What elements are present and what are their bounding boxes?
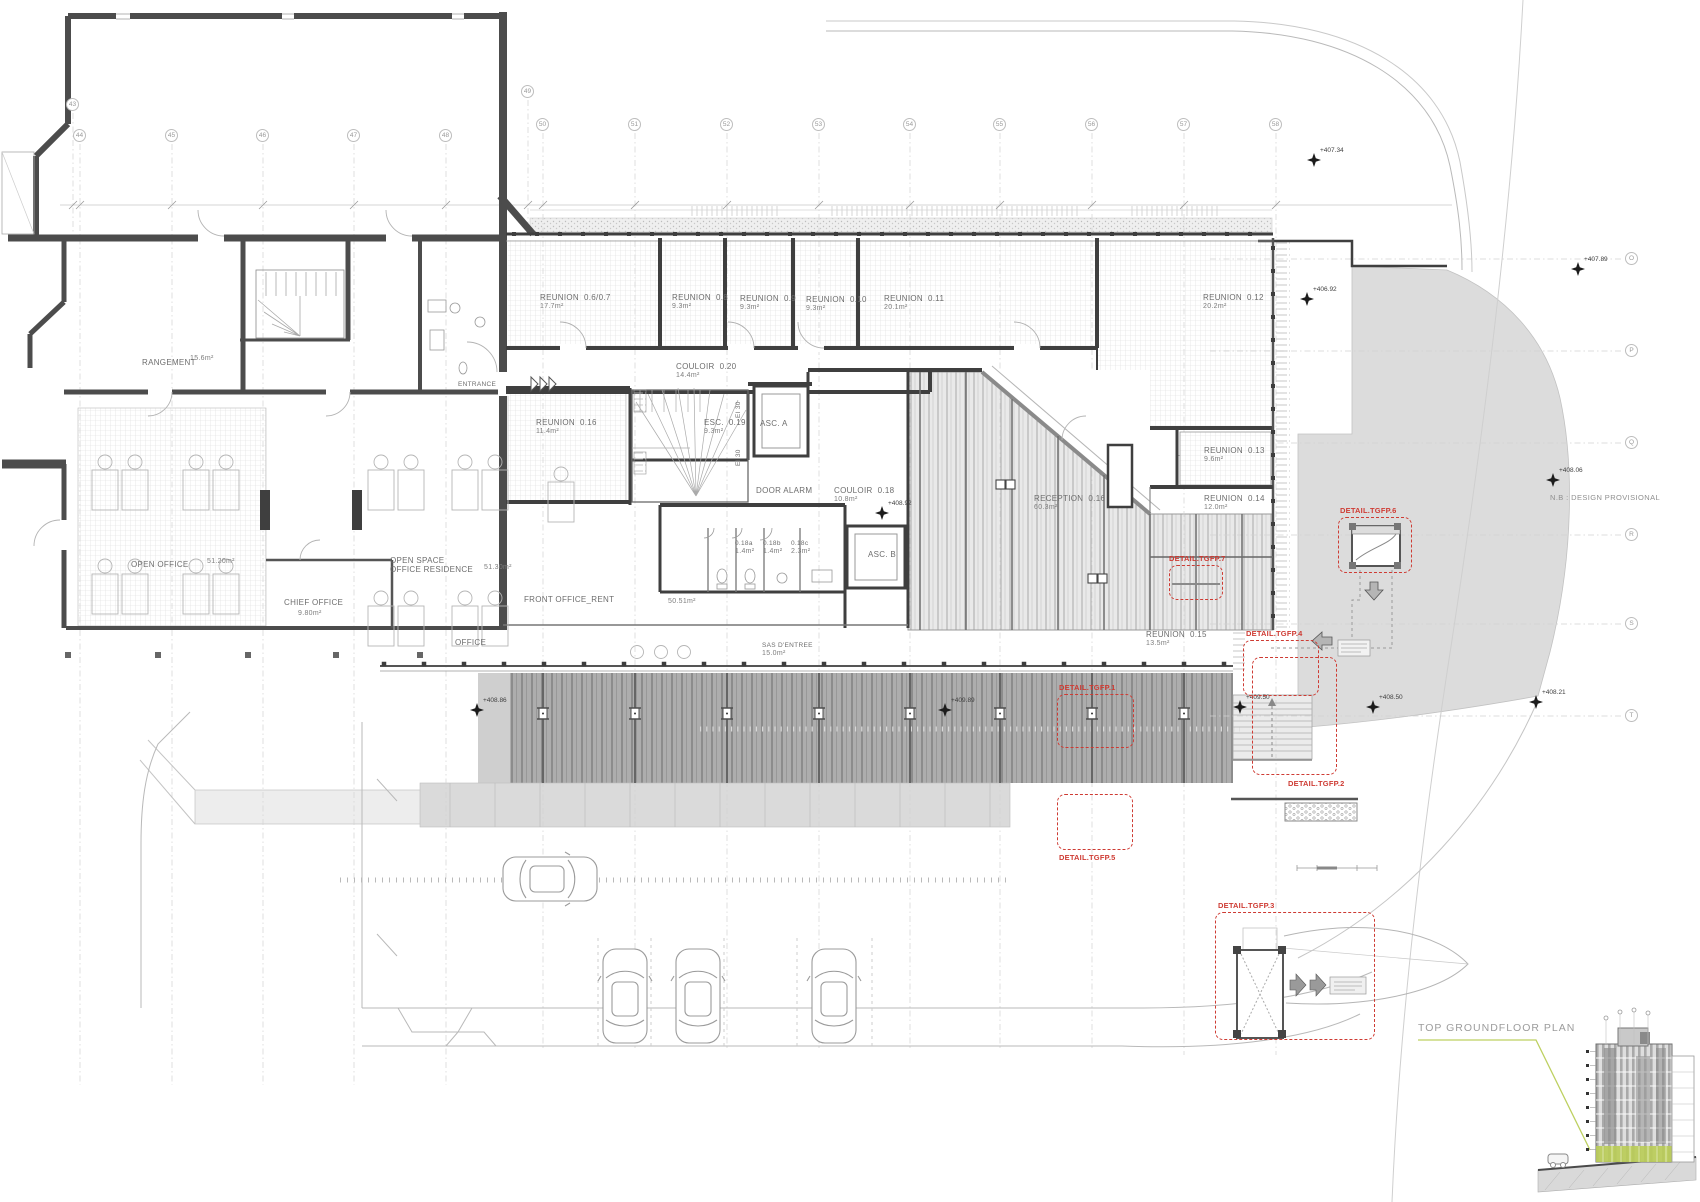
room-label-reunion-0-12: REUNION 0.1220.2m² [1203, 293, 1264, 302]
room-name: REUNION 0.12 [1203, 293, 1264, 302]
grid-column-56: 56 [1085, 118, 1098, 131]
room-name: CHIEF OFFICE [284, 598, 343, 607]
room-label-asc-a: ASC. A [760, 419, 788, 428]
room-label-reunion-0-13: REUNION 0.139.6m² [1204, 446, 1265, 455]
room-name: ENTRANCE [458, 381, 496, 388]
room-name: OPEN OFFICE [131, 560, 189, 569]
room-area: 51.20m² [207, 557, 235, 566]
level-mark-407-34: +407.34 [1320, 147, 1344, 154]
level-mark-408-06: +408.06 [1559, 467, 1583, 474]
room-name: REUNION 0.14 [1204, 494, 1265, 503]
room-name: ASC. B [868, 550, 896, 559]
grid-column-45: 45 [165, 129, 178, 142]
plan-title: TOP GROUNDFLOOR PLAN [1418, 1022, 1575, 1034]
grid-column-47: 47 [347, 129, 360, 142]
room-label-reunion-0-15: REUNION 0.1513.5m² [1146, 630, 1207, 639]
room-label-chief-office: CHIEF OFFICE9.80m² [284, 598, 343, 607]
room-label-entrance: ENTRANCE [458, 379, 496, 389]
detail-box-detail-tgfp-6 [1338, 517, 1412, 573]
room-area: 9.3m² [806, 304, 825, 313]
room-area: 11.4m² [536, 427, 559, 436]
room-name: FRONT OFFICE_RENT [524, 595, 614, 604]
room-area: 20.1m² [884, 303, 908, 312]
room-area: 14.4m² [676, 371, 700, 380]
grid-row-p: P [1625, 344, 1638, 357]
room-label-sas-d-entree: SAS D'ENTREE15.0m² [762, 640, 813, 650]
room-name: ESC. 0.19 [704, 418, 746, 427]
room-label-reunion-0-14: REUNION 0.1412.0m² [1204, 494, 1265, 503]
level-mark-408-92: +408.92 [888, 500, 912, 507]
room-area: 50.51m² [668, 597, 696, 606]
room-name: COULOIR 0.20 [676, 362, 736, 371]
detail-box-detail-tgfp-3 [1215, 912, 1375, 1040]
detail-box-detail-tgfp-5 [1057, 794, 1133, 850]
room-label-ei-30: EI 30 [733, 401, 743, 418]
level-mark-408-86: +408.86 [483, 697, 507, 704]
room-label-couloir-0-18: COULOIR 0.1810.8m² [834, 486, 894, 495]
detail-label-detail-tgfp-6: DETAIL.TGFP.6 [1340, 506, 1397, 515]
detail-label-detail-tgfp-3: DETAIL.TGFP.3 [1218, 901, 1275, 910]
room-area: 2.3m² [791, 547, 810, 556]
room-name: ASC. A [760, 419, 788, 428]
room-label-reunion-0-6-0-7: REUNION 0.6/0.717.7m² [540, 293, 611, 302]
room-label-rangement: RANGEMENT15.6m² [142, 358, 196, 367]
grid-column-55: 55 [993, 118, 1006, 131]
room-name: SAS D'ENTREE [762, 642, 813, 649]
room-area: 1.4m² [763, 547, 782, 556]
room-name: REUNION 0.8 [672, 293, 728, 302]
grid-column-53: 53 [812, 118, 825, 131]
room-area: 9.6m² [1204, 455, 1223, 464]
room-area: 60.3m² [1034, 503, 1058, 512]
design-provisional-note: N.B : DESIGN PROVISIONAL [1550, 493, 1660, 502]
room-name: REUNION 0.6/0.7 [540, 293, 611, 302]
room-area: 9.80m² [298, 609, 322, 618]
room-label-reception-0-16: RECEPTION 0.1660.3m² [1034, 494, 1105, 503]
room-name: REUNION 0.9 [740, 294, 796, 303]
room-label-esc-0-19: ESC. 0.199.3m² [704, 418, 746, 427]
room-area: 9.3m² [740, 303, 759, 312]
room-name: REUNION 0.10 [806, 295, 867, 304]
room-name: 0.18c [791, 540, 808, 547]
room-label-office: OFFICE [455, 638, 486, 647]
label-overlay: N.B : DESIGN PROVISIONAL TOP GROUNDFLOOR… [0, 0, 1700, 1202]
detail-label-detail-tgfp-1: DETAIL.TGFP.1 [1059, 683, 1116, 692]
room-area: 12.0m² [1204, 503, 1228, 512]
room-area: 20.2m² [1203, 302, 1227, 311]
grid-row-s: S [1625, 617, 1638, 630]
room-label-front-office-rent: FRONT OFFICE_RENT50.51m² [524, 595, 614, 604]
room-name: OFFICE [455, 638, 486, 647]
room-area: 13.5m² [1146, 639, 1170, 648]
detail-label-detail-tgfp-7: DETAIL.TGFP.7 [1169, 554, 1226, 563]
detail-box-detail-tgfp-7 [1169, 565, 1223, 600]
floor-plan-canvas: N.B : DESIGN PROVISIONAL TOP GROUNDFLOOR… [0, 0, 1700, 1202]
level-mark-406-92: +406.92 [1313, 286, 1337, 293]
room-label-door-alarm: DOOR ALARM [756, 486, 812, 495]
grid-column-49: 49 [521, 85, 534, 98]
grid-column-54: 54 [903, 118, 916, 131]
detail-label-detail-tgfp-5: DETAIL.TGFP.5 [1059, 853, 1116, 862]
room-area: 15.0m² [762, 649, 786, 658]
grid-column-48: 48 [439, 129, 452, 142]
room-label-0-18a: 0.18a1.4m² [735, 538, 753, 548]
room-area: 9.3m² [672, 302, 691, 311]
room-area: 51.30m² [484, 563, 512, 572]
room-label-reunion-0-11: REUNION 0.1120.1m² [884, 294, 944, 303]
grid-row-q: Q [1625, 436, 1638, 449]
room-name: DOOR ALARM [756, 486, 812, 495]
room-name: COULOIR 0.18 [834, 486, 894, 495]
level-mark-407-89: +407.89 [1584, 256, 1608, 263]
room-label-reunion-0-8: REUNION 0.89.3m² [672, 293, 728, 302]
room-label-reunion-0-10: REUNION 0.109.3m² [806, 295, 867, 304]
grid-column-51: 51 [628, 118, 641, 131]
grid-row-r: R [1625, 528, 1638, 541]
room-label-reunion-0-9: REUNION 0.99.3m² [740, 294, 796, 303]
room-label-reunion-0-16: REUNION 0.1611.4m² [536, 418, 597, 427]
room-area: 1.4m² [735, 547, 754, 556]
room-area: 15.6m² [190, 354, 214, 363]
room-name: EI 30 [735, 449, 742, 466]
level-mark-408-21: +408.21 [1542, 689, 1566, 696]
room-name: 0.18a [735, 540, 753, 547]
room-name: RECEPTION 0.16 [1034, 494, 1105, 503]
room-label-asc-b: ASC. B [868, 550, 896, 559]
room-name: RANGEMENT [142, 358, 196, 367]
room-label-0-18c: 0.18c2.3m² [791, 538, 808, 548]
level-mark-408-50: +408.50 [1379, 694, 1403, 701]
level-mark-409-89: +409.89 [951, 697, 975, 704]
room-label-0-18b: 0.18b1.4m² [763, 538, 781, 548]
room-name: REUNION 0.15 [1146, 630, 1207, 639]
room-name: 0.18b [763, 540, 781, 547]
grid-column-44: 44 [73, 129, 86, 142]
room-name: REUNION 0.11 [884, 294, 944, 303]
room-area: 10.8m² [834, 495, 858, 504]
room-area: 9.3m² [704, 427, 723, 436]
detail-label-detail-tgfp-4: DETAIL.TGFP.4 [1246, 629, 1303, 638]
room-name: REUNION 0.16 [536, 418, 597, 427]
detail-box-detail-tgfp-4 [1243, 640, 1319, 696]
detail-box-detail-tgfp-1 [1057, 694, 1134, 748]
grid-column-43: 43 [66, 98, 79, 111]
grid-column-50: 50 [536, 118, 549, 131]
room-label-couloir-0-20: COULOIR 0.2014.4m² [676, 362, 736, 371]
grid-column-52: 52 [720, 118, 733, 131]
room-label-open-space-office-residence: OPEN SPACE OFFICE RESIDENCE51.30m² [390, 556, 473, 574]
detail-label-detail-tgfp-2: DETAIL.TGFP.2 [1288, 779, 1345, 788]
grid-row-t: T [1625, 709, 1638, 722]
room-label-open-office: OPEN OFFICE51.20m² [131, 560, 189, 569]
grid-column-46: 46 [256, 129, 269, 142]
grid-row-o: O [1625, 252, 1638, 265]
room-name: OPEN SPACE OFFICE RESIDENCE [390, 556, 473, 574]
grid-column-58: 58 [1269, 118, 1282, 131]
room-name: REUNION 0.13 [1204, 446, 1265, 455]
room-name: EI 30 [735, 401, 742, 418]
grid-column-57: 57 [1177, 118, 1190, 131]
room-area: 17.7m² [540, 302, 564, 311]
room-label-ei-30: EI 30 [733, 449, 743, 466]
